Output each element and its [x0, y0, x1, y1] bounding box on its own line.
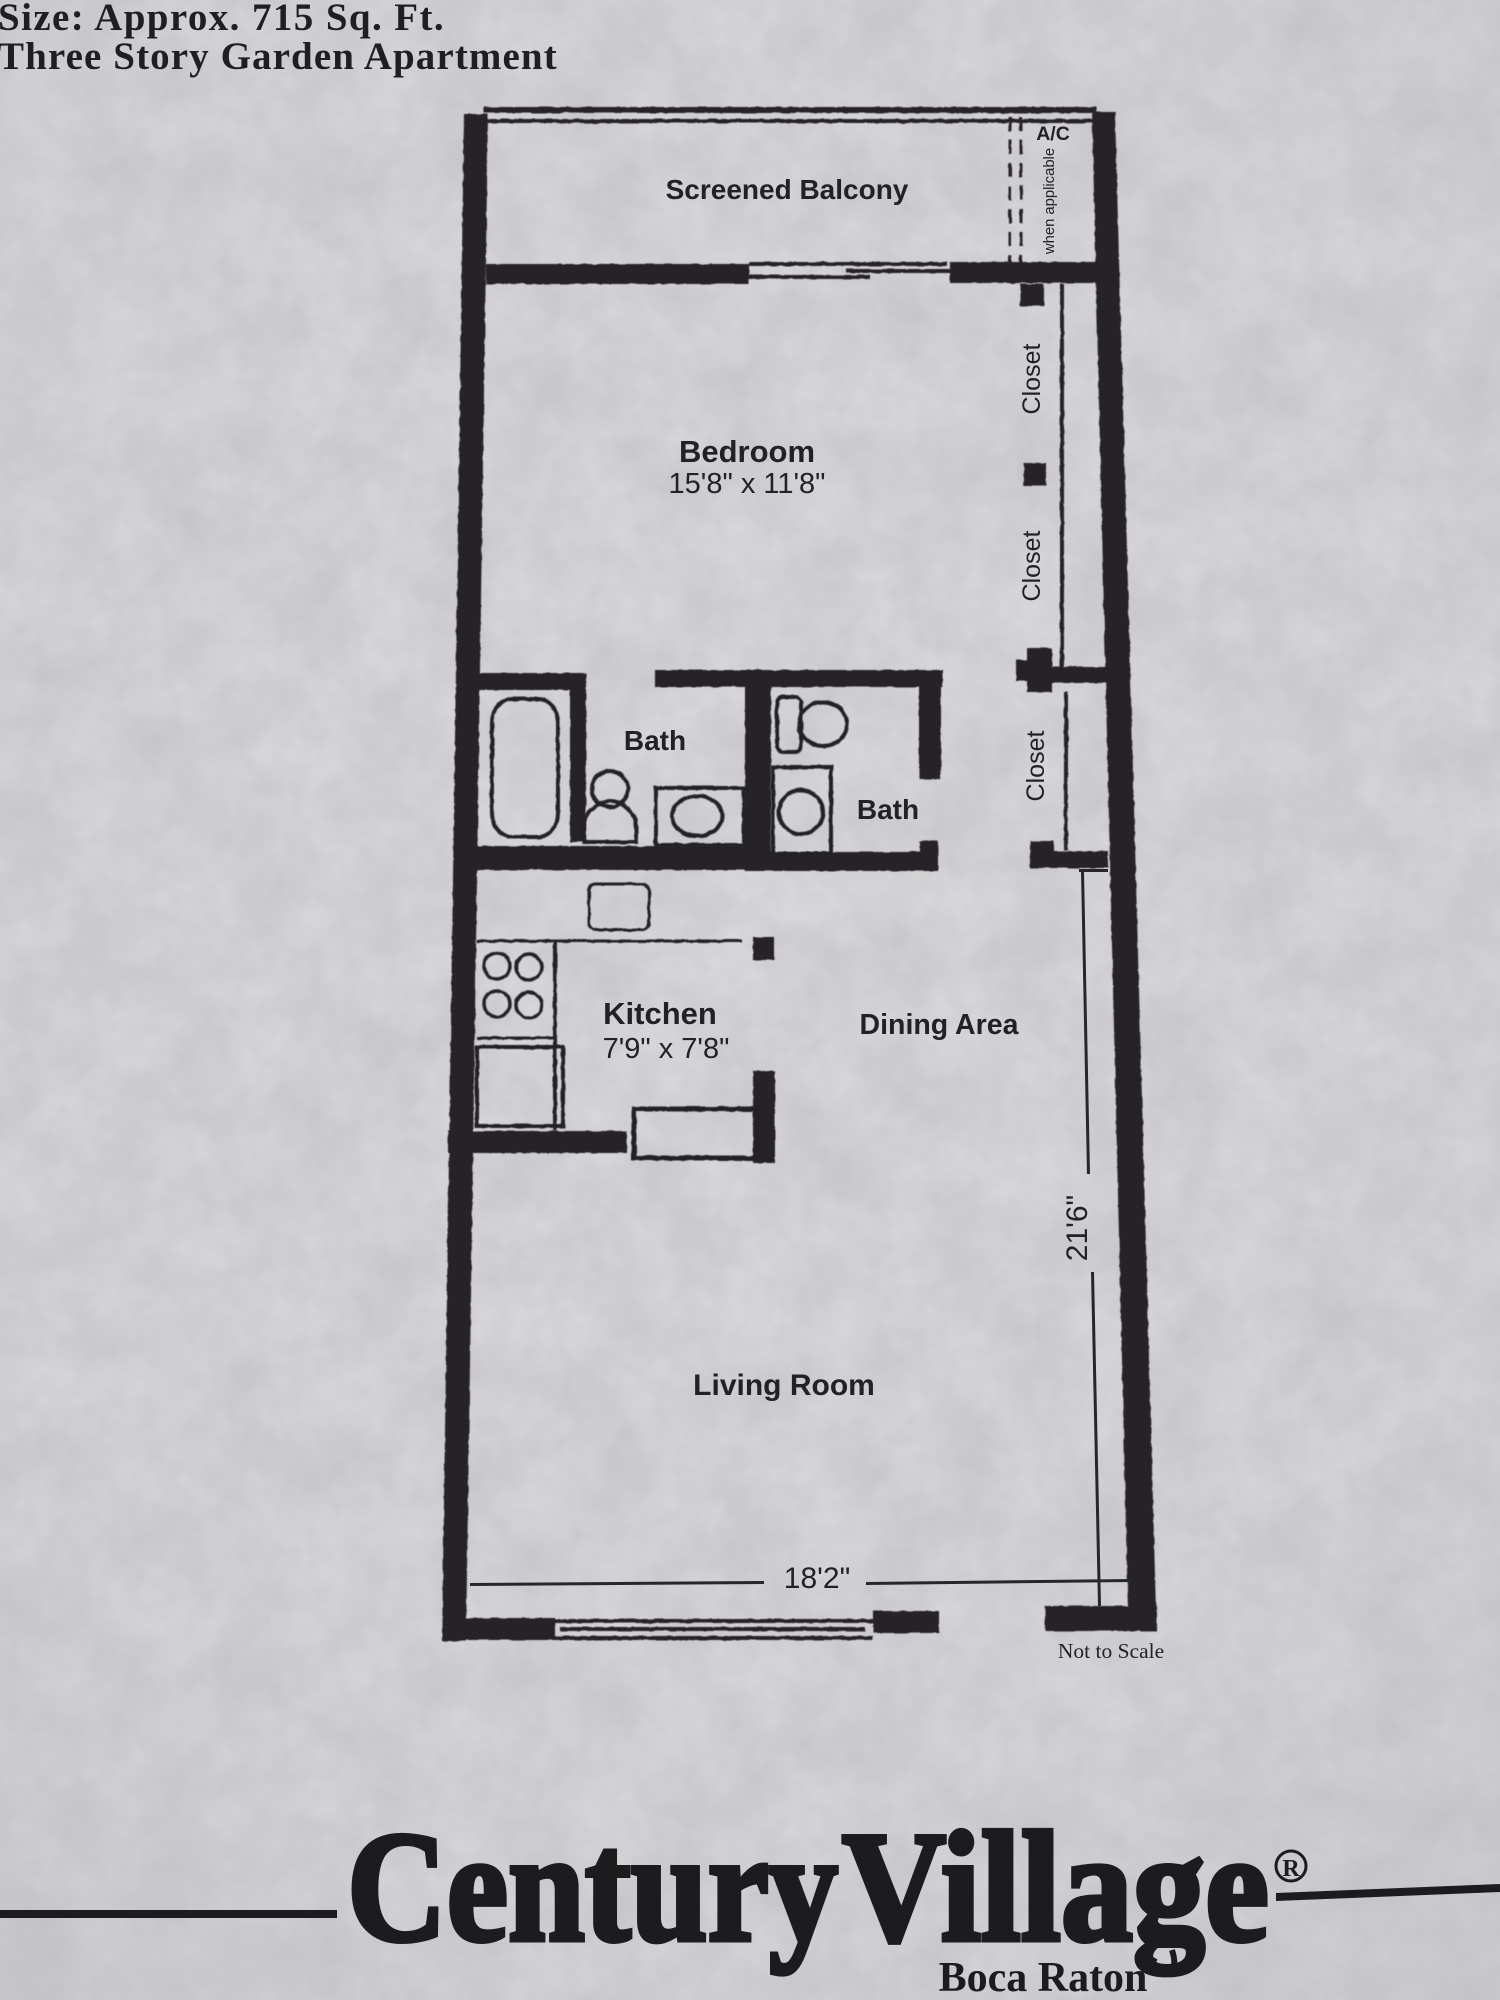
svg-text:Not to Scale: Not to Scale: [1058, 1639, 1164, 1663]
svg-text:21'6": 21'6": [1061, 1195, 1094, 1261]
svg-text:A/C: A/C: [1036, 123, 1070, 145]
svg-text:15'8" x 11'8": 15'8" x 11'8": [669, 468, 826, 500]
svg-text:Bath: Bath: [624, 725, 686, 756]
svg-text:Bath: Bath: [857, 794, 919, 825]
svg-text:Three Story Garden Apartment: Three Story Garden Apartment: [0, 35, 558, 78]
svg-text:Century: Century: [347, 1800, 838, 1975]
svg-text:Kitchen: Kitchen: [603, 996, 717, 1031]
svg-text:Village: Village: [842, 1800, 1269, 1975]
svg-text:18'2": 18'2": [784, 1562, 850, 1595]
svg-text:Closet: Closet: [1018, 344, 1046, 415]
svg-text:7'9" x 7'8": 7'9" x 7'8": [603, 1033, 730, 1065]
svg-text:when applicable: when applicable: [1042, 148, 1058, 255]
svg-text:Closet: Closet: [1022, 731, 1050, 802]
svg-text:Living Room: Living Room: [693, 1369, 875, 1402]
svg-text:Size: Approx. 715 Sq. Ft.: Size: Approx. 715 Sq. Ft.: [0, 0, 445, 39]
svg-text:Closet: Closet: [1018, 531, 1046, 602]
svg-text:R: R: [1282, 1856, 1300, 1882]
svg-text:Screened Balcony: Screened Balcony: [666, 174, 909, 205]
svg-text:Boca Raton: Boca Raton: [939, 1955, 1148, 2000]
svg-text:Bedroom: Bedroom: [679, 434, 815, 469]
svg-text:Dining Area: Dining Area: [860, 1009, 1020, 1041]
